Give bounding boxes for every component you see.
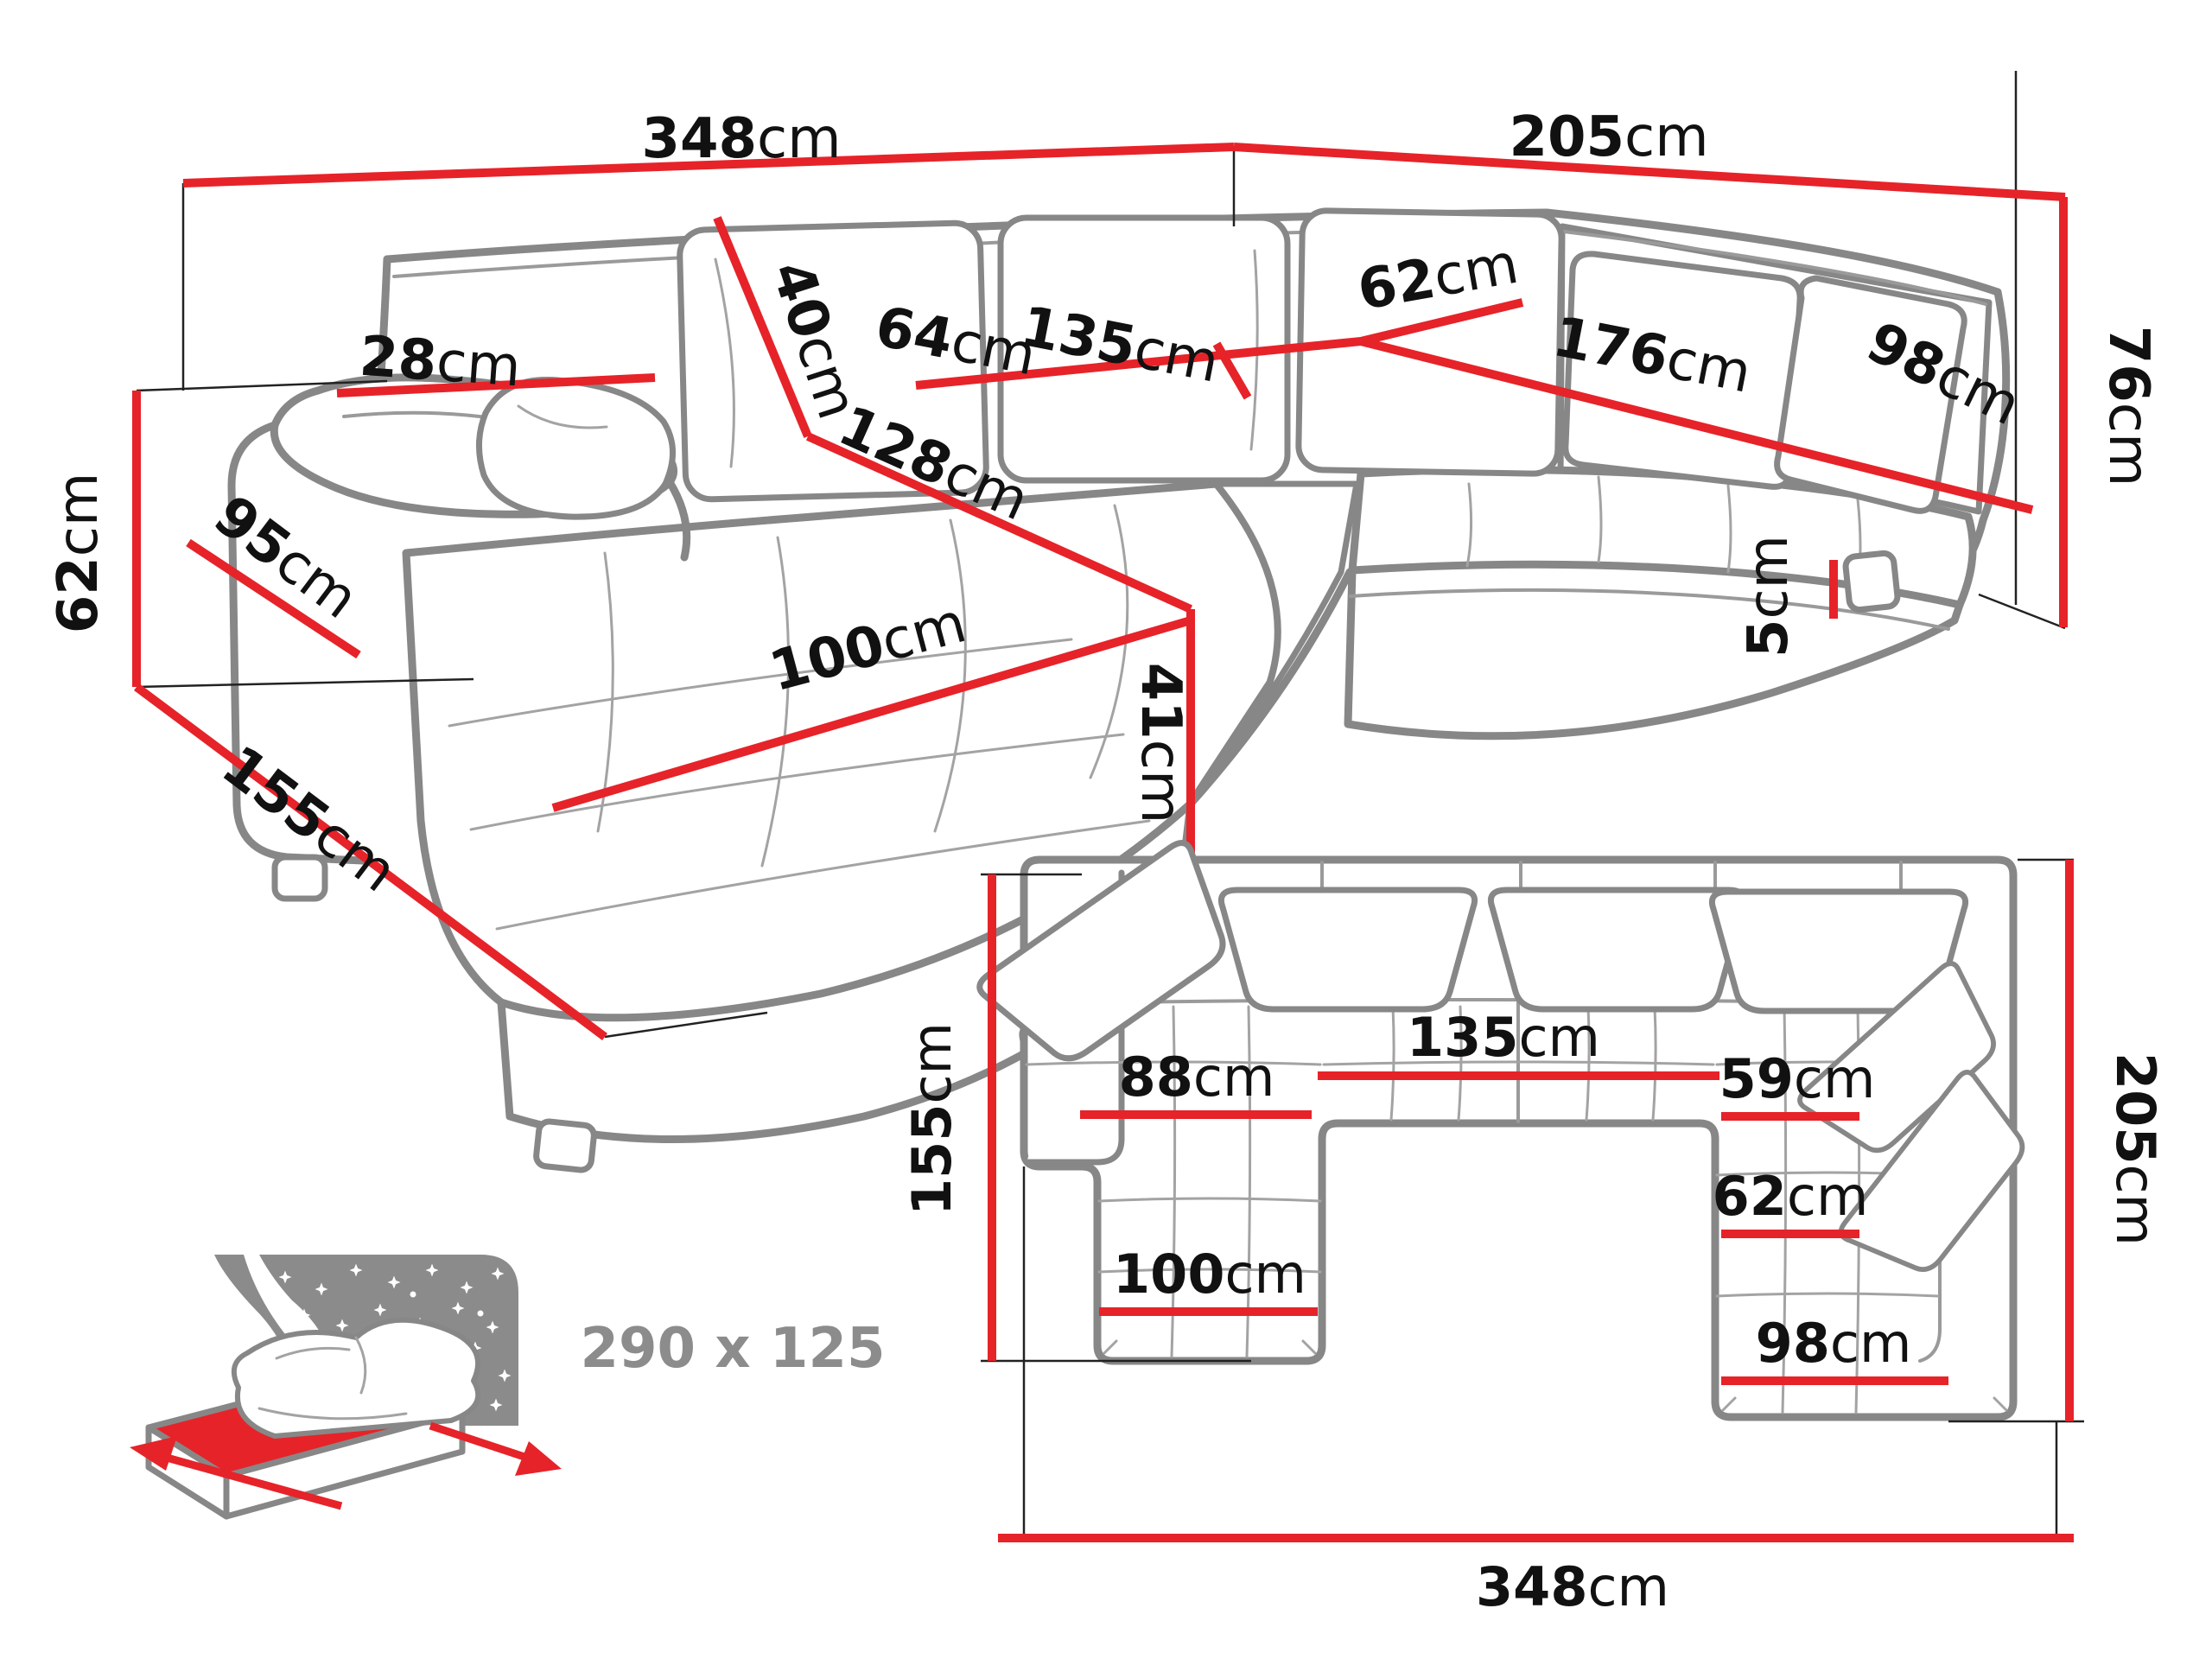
dim-5-leg: 5cm (1737, 535, 1801, 658)
plan-dim-98: 98cm (1756, 1312, 1912, 1375)
plan-dim-59: 59cm (1719, 1047, 1876, 1110)
plan-dim-62: 62cm (1713, 1165, 1869, 1228)
dim-348-top: 348cm (641, 107, 841, 171)
plan-dim-135: 135cm (1407, 1006, 1600, 1069)
sleeping-function-icon: 290 x 125 (130, 1255, 886, 1516)
dim-62-left: 62cm (47, 473, 111, 634)
plan-dim-100: 100cm (1113, 1243, 1306, 1306)
bedding (234, 1320, 478, 1436)
sofa-leg (535, 1121, 594, 1171)
dim-28-armrest: 28cm (358, 325, 523, 400)
dim-205-top: 205cm (1509, 105, 1708, 169)
plan-dim-205: 205cm (2104, 1052, 2167, 1246)
dim-41-seat-height: 41cm (1128, 663, 1192, 824)
plan-dim-88: 88cm (1119, 1046, 1275, 1109)
dim-76-back: 76cm (2096, 326, 2160, 487)
sofa-dimension-diagram: 348cm 205cm 62cm 155cm 95cm 28cm 40cm 64… (0, 0, 2212, 1659)
plan-dim-155: 155cm (900, 1022, 963, 1216)
plan-dim-348: 348cm (1476, 1555, 1669, 1618)
sleeping-size-label: 290 x 125 (580, 1317, 885, 1381)
sofa-leg (1845, 552, 1898, 611)
